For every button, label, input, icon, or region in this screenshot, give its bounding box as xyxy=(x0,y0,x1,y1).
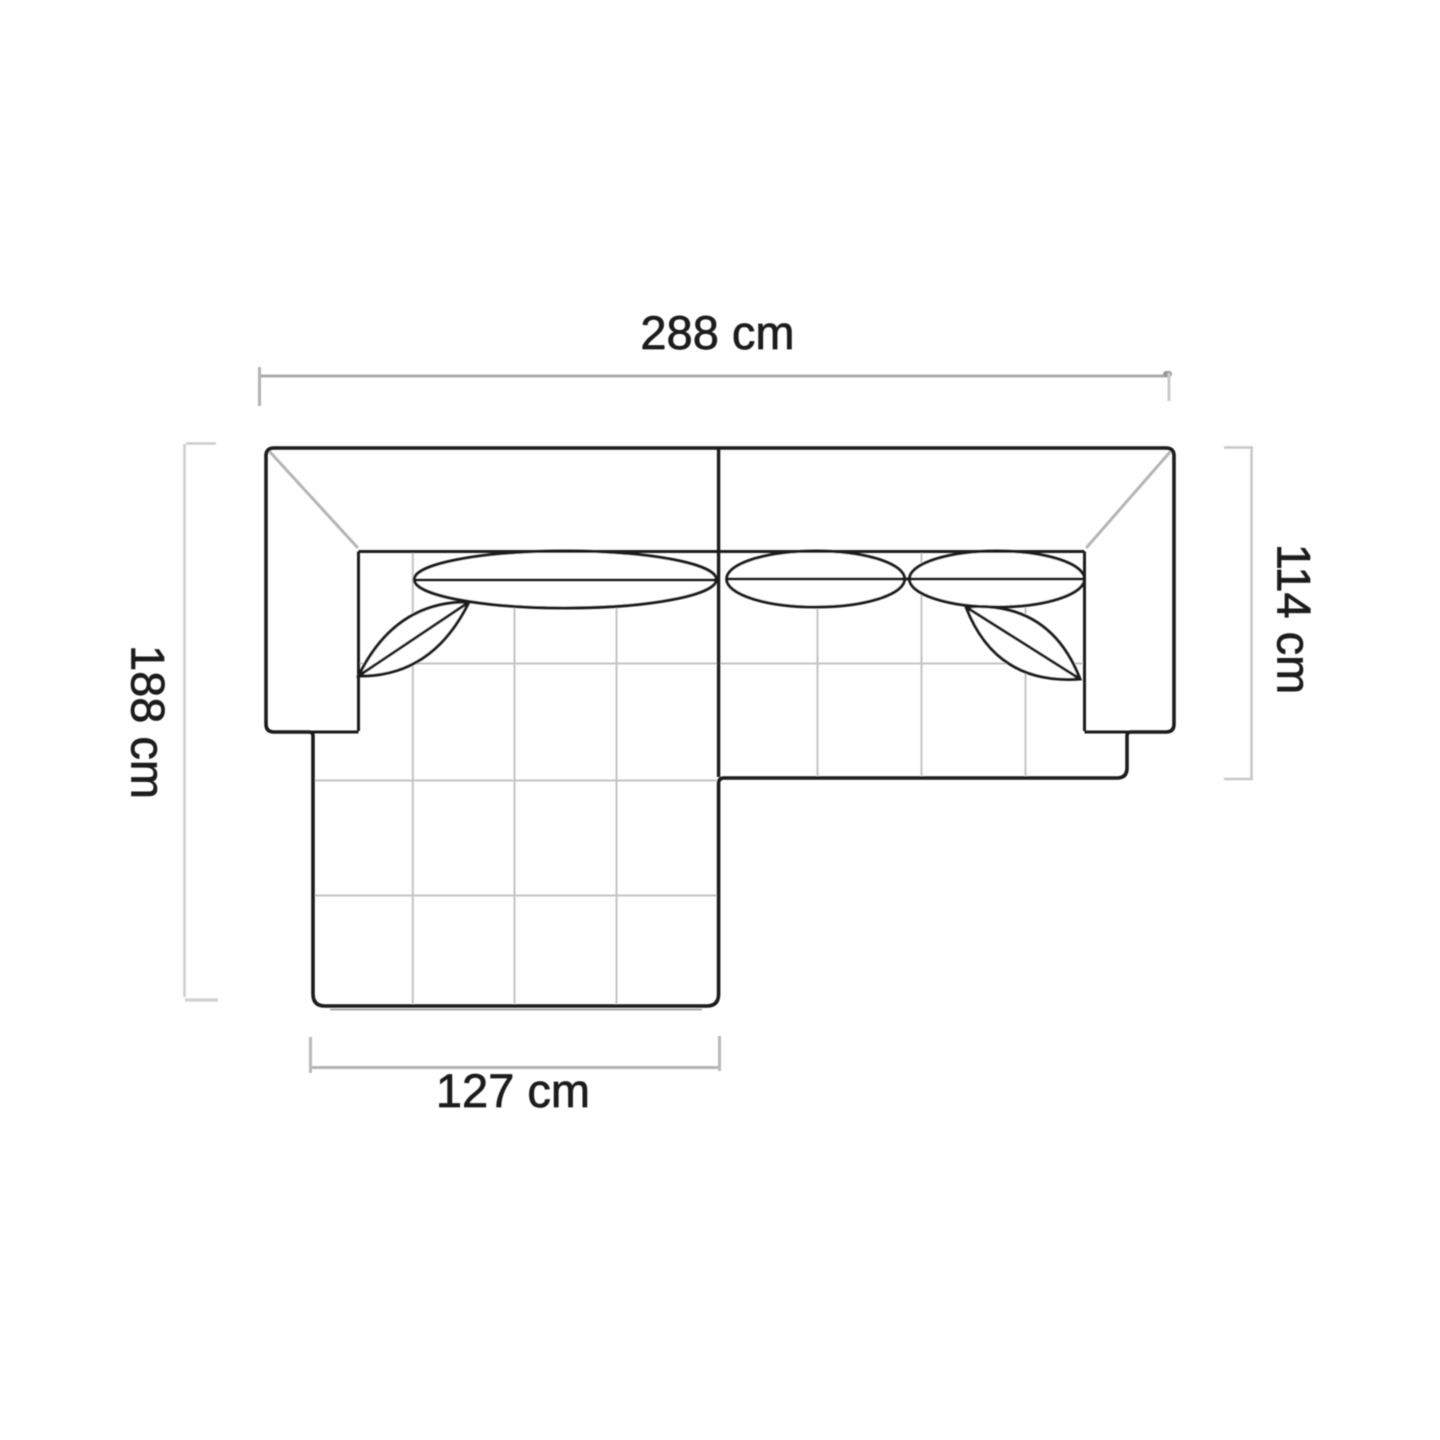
svg-text:288 cm: 288 cm xyxy=(640,306,794,359)
svg-text:188 cm: 188 cm xyxy=(122,645,175,799)
svg-text:127 cm: 127 cm xyxy=(436,1064,590,1117)
svg-text:114 cm: 114 cm xyxy=(1268,544,1321,695)
